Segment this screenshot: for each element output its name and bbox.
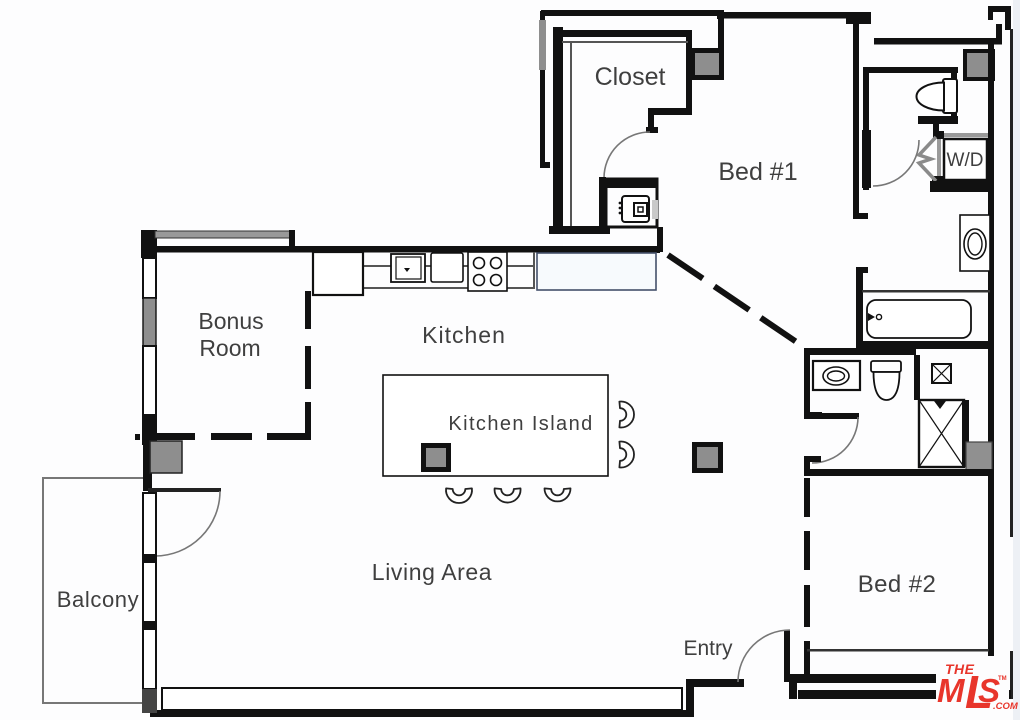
svg-text:Bonus: Bonus [198, 308, 263, 334]
svg-text:Living Area: Living Area [372, 559, 492, 585]
svg-text:M: M [937, 672, 966, 709]
svg-text:TM: TM [998, 676, 1007, 682]
svg-text:Entry: Entry [683, 637, 733, 660]
svg-text:.COM: .COM [993, 701, 1019, 712]
svg-text:Bed #2: Bed #2 [858, 571, 936, 598]
svg-text:Closet: Closet [595, 63, 666, 91]
svg-text:W/D: W/D [947, 150, 984, 171]
svg-text:Room: Room [199, 335, 260, 361]
svg-text:Kitchen Island: Kitchen Island [448, 413, 593, 435]
svg-text:Balcony: Balcony [57, 587, 139, 612]
svg-text:Kitchen: Kitchen [422, 322, 506, 348]
svg-text:Bed #1: Bed #1 [718, 158, 797, 186]
